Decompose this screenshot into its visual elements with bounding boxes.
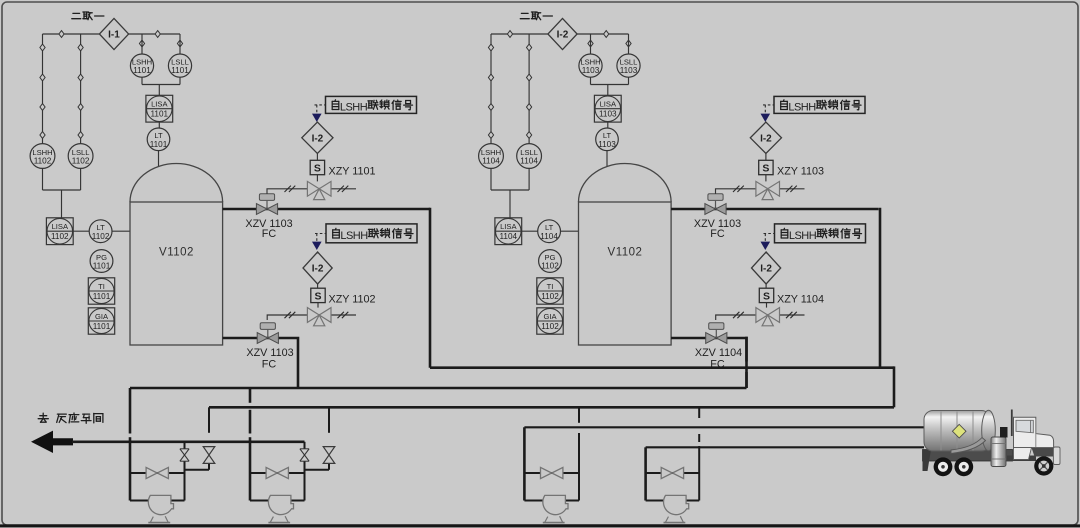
svg-text:LT: LT [603,131,612,140]
svg-text:1102: 1102 [92,232,110,241]
svg-text:LT: LT [545,223,554,232]
svg-text:LSHH: LSHH [788,101,816,113]
svg-text:LSHH: LSHH [32,148,52,157]
svg-text:1104: 1104 [540,232,558,241]
svg-text:1102: 1102 [34,157,52,166]
svg-text:LSHH: LSHH [132,57,152,66]
svg-text:I-2: I-2 [557,30,569,41]
svg-text:1104: 1104 [499,232,517,241]
svg-text:1101: 1101 [93,322,111,331]
svg-text:1102: 1102 [541,322,559,331]
svg-text:1101: 1101 [171,66,189,75]
svg-text:1103: 1103 [599,110,617,119]
svg-text:LSHH: LSHH [340,230,368,242]
svg-text:1102: 1102 [72,157,90,166]
svg-text:TI: TI [98,282,105,291]
svg-text:LISA: LISA [600,100,617,109]
svg-text:1104: 1104 [520,157,538,166]
svg-text:I-2: I-2 [760,133,772,144]
svg-text:FC: FC [710,228,725,240]
svg-text:S: S [314,290,321,302]
svg-text:GIA: GIA [95,312,109,321]
svg-text:LISA: LISA [52,222,69,231]
svg-text:I-2: I-2 [760,264,772,275]
svg-text:S: S [762,162,769,174]
svg-text:XZV 1104: XZV 1104 [695,347,742,359]
svg-text:XZY 1104: XZY 1104 [777,294,824,306]
svg-text:GIA: GIA [543,312,557,321]
svg-text:LT: LT [154,131,163,140]
svg-text:1102: 1102 [51,232,69,241]
svg-text:LISA: LISA [151,100,168,109]
svg-text:1101: 1101 [150,140,168,149]
svg-text:XZY 1102: XZY 1102 [329,294,376,306]
svg-text:1103: 1103 [620,66,638,75]
svg-text:XZY 1103: XZY 1103 [777,166,824,178]
svg-text:1103: 1103 [598,140,616,149]
svg-text:S: S [763,290,770,302]
svg-text:LSLL: LSLL [520,148,538,157]
svg-text:LSHH: LSHH [789,230,817,242]
svg-text:XZV 1103: XZV 1103 [246,347,293,359]
svg-text:1102: 1102 [541,292,559,301]
svg-text:1101: 1101 [93,292,111,301]
svg-text:1102: 1102 [541,262,559,271]
svg-text:1104: 1104 [482,157,500,166]
svg-text:XZY 1101: XZY 1101 [329,166,376,178]
svg-text:I-1: I-1 [108,30,120,41]
svg-text:PG: PG [545,253,556,262]
svg-text:1101: 1101 [93,262,111,271]
svg-text:I-2: I-2 [312,133,324,144]
svg-text:1101: 1101 [150,110,168,119]
svg-text:V1102: V1102 [608,247,643,259]
svg-text:FC: FC [262,228,277,240]
svg-text:TI: TI [547,282,554,291]
svg-text:S: S [314,162,321,174]
svg-text:V1102: V1102 [159,247,194,259]
svg-text:1101: 1101 [133,66,151,75]
svg-text:I-2: I-2 [312,264,324,275]
svg-text:LSLL: LSLL [72,148,90,157]
svg-text:LSHH: LSHH [481,148,501,157]
svg-text:LISA: LISA [500,222,517,231]
svg-text:LSLL: LSLL [171,57,189,66]
svg-text:FC: FC [262,359,277,371]
svg-text:PG: PG [96,253,107,262]
svg-text:LSLL: LSLL [620,57,638,66]
svg-text:LT: LT [96,223,105,232]
svg-text:LSHH: LSHH [340,101,368,113]
svg-text:1103: 1103 [582,66,600,75]
svg-text:LSHH: LSHH [580,57,600,66]
